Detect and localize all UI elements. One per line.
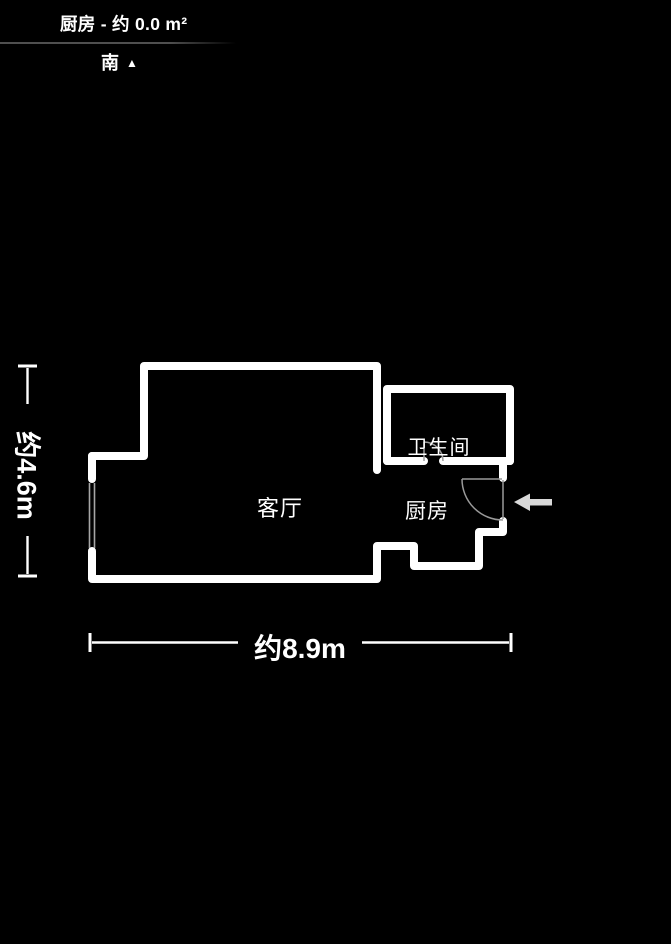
room-label-kitchen[interactable]: 厨房 [387, 495, 467, 525]
room-label-living-room[interactable]: 客厅 [238, 491, 322, 523]
room-label-bathroom[interactable]: 卫生间 [399, 431, 479, 460]
window-left-wall [90, 483, 95, 548]
walls [92, 366, 510, 579]
entrance-door-arc [462, 479, 503, 520]
dimension-width-label: 约8.9m [240, 627, 360, 667]
wall-top-left [92, 366, 377, 470]
dimension-height-label: 约4.6m [10, 416, 49, 536]
floor-plan-canvas [0, 0, 671, 944]
entrance-arrow-icon [514, 494, 552, 512]
entrance-door [462, 479, 503, 520]
floor-plan-viewer: 厨房 - 约 0.0 m² 南 ▲ [0, 0, 671, 944]
wall-bottom-stepped [92, 521, 503, 579]
